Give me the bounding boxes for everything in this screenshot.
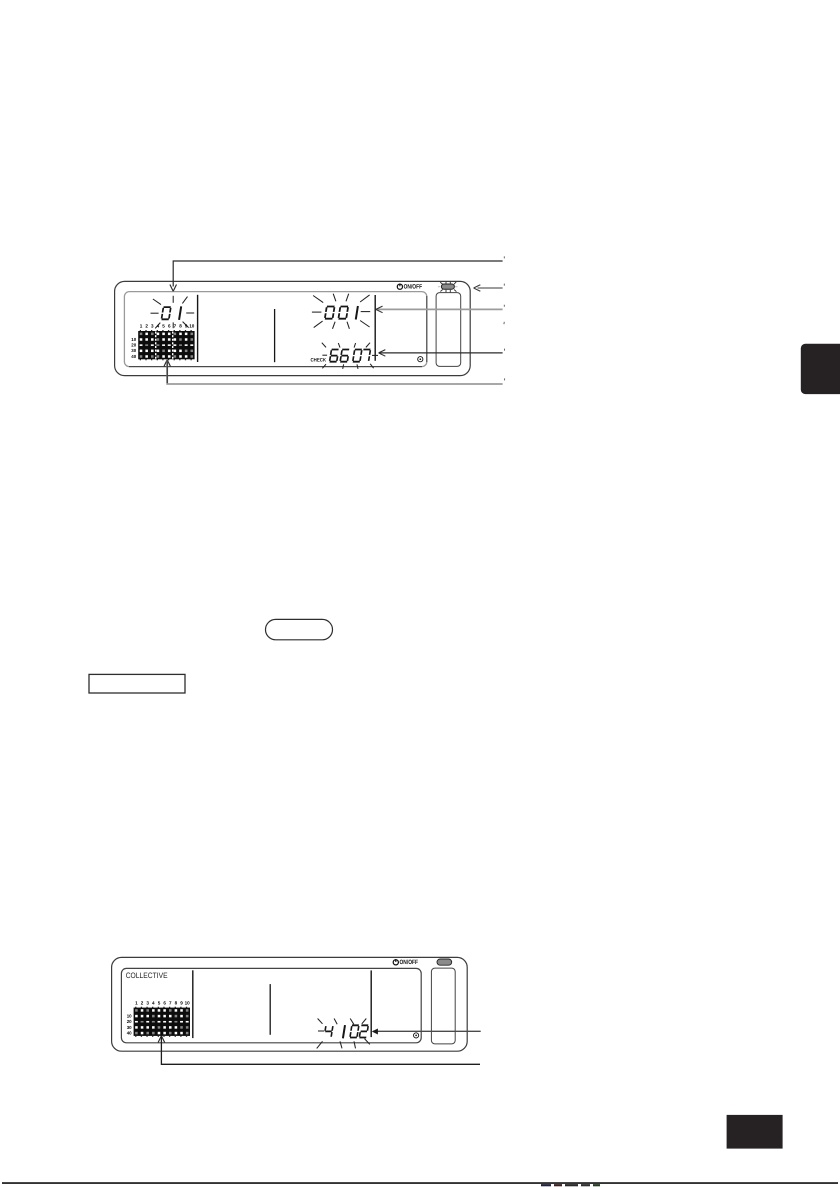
svg-text:9: 9 [185,324,188,329]
svg-text:ON/OFF: ON/OFF [400,959,419,966]
svg-text:CHECK: CHECK [311,357,327,363]
svg-text:2: 2 [141,1001,144,1006]
svg-text:ON/OFF: ON/OFF [404,284,423,291]
svg-text:7: 7 [174,324,177,329]
svg-text:10: 10 [131,337,136,342]
svg-text:6: 6 [163,1001,166,1006]
svg-text:5: 5 [158,1001,161,1006]
svg-text:9: 9 [180,1001,183,1006]
svg-text:3: 3 [146,1001,149,1006]
svg-text:10: 10 [189,324,195,329]
svg-text:30: 30 [127,1025,132,1030]
svg-text:5: 5 [162,324,165,329]
svg-text:6: 6 [168,324,171,329]
svg-text:1: 1 [135,1001,138,1006]
svg-text:4: 4 [157,324,160,329]
svg-text:20: 20 [131,343,136,348]
svg-text:30: 30 [131,348,136,353]
svg-text:10: 10 [185,1001,191,1006]
svg-text:COLLECTIVE: COLLECTIVE [126,971,168,980]
svg-text:8: 8 [175,1001,178,1006]
svg-text:8: 8 [179,324,182,329]
svg-text:20: 20 [127,1019,132,1024]
svg-text:40: 40 [127,1030,132,1035]
svg-text:2: 2 [145,324,148,329]
svg-text:7: 7 [169,1001,172,1006]
svg-text:4: 4 [152,1001,155,1006]
svg-text:1: 1 [140,324,143,329]
svg-text:10: 10 [127,1013,132,1018]
svg-text:40: 40 [131,354,136,359]
svg-text:3: 3 [151,324,154,329]
